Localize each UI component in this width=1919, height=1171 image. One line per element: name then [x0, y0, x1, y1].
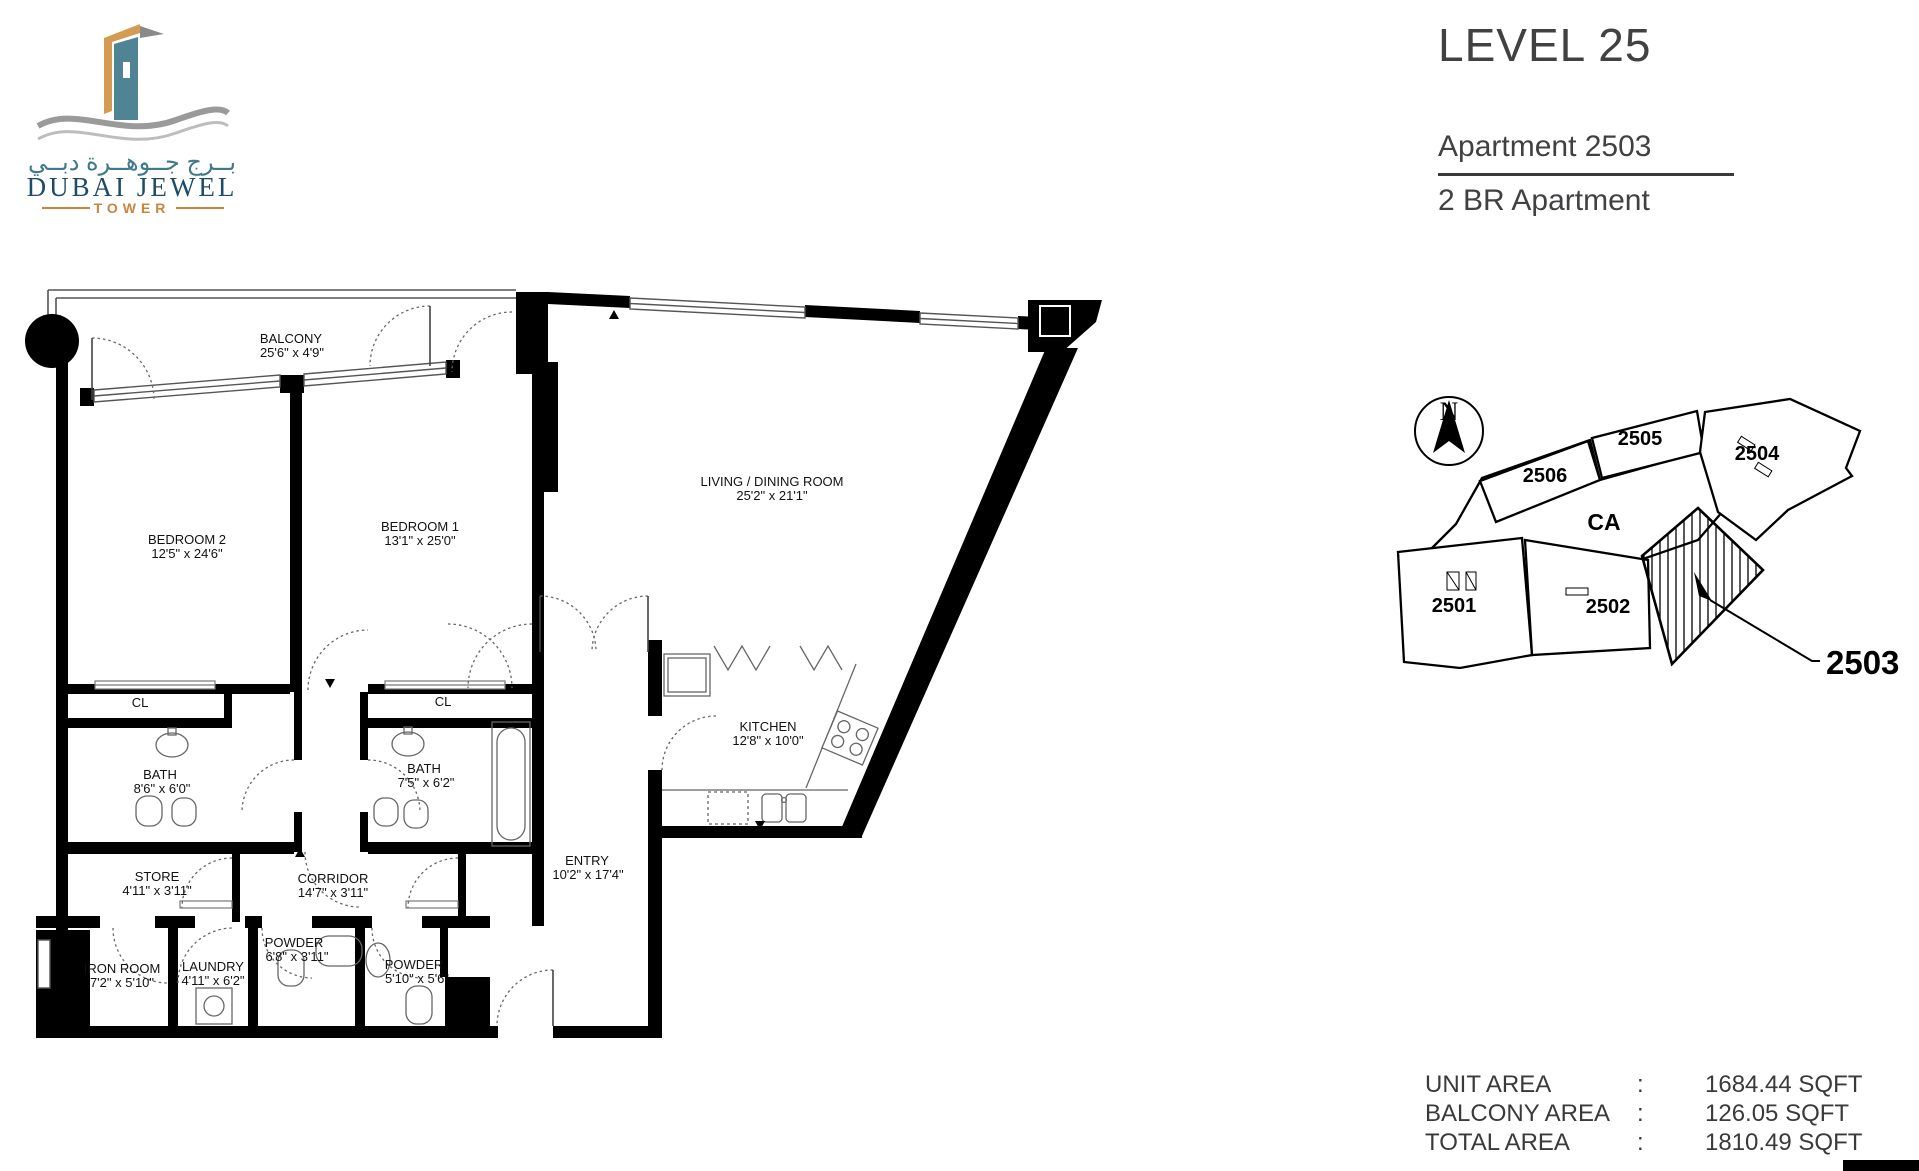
- level-title: LEVEL 25: [1438, 18, 1651, 72]
- balcony-area-row: BALCONY AREA : 126.05 SQFT: [1425, 1099, 1862, 1128]
- room-label-living-dining: LIVING / DINING ROOM 25'2" x 21'1": [700, 474, 843, 503]
- shelves-left: [714, 646, 770, 670]
- svg-text:14'7" x 3'11": 14'7" x 3'11": [298, 885, 369, 900]
- svg-text:BATH: BATH: [407, 761, 441, 776]
- svg-text:12'5" x 24'6": 12'5" x 24'6": [151, 546, 223, 561]
- total-area-colon: :: [1637, 1128, 1705, 1157]
- keyplan-label-2501: 2501: [1432, 595, 1477, 617]
- corner-bar: [1843, 1160, 1919, 1171]
- room-label-bath-1: BATH 8'6" x 6'0": [134, 767, 191, 796]
- unit-area-label: UNIT AREA: [1425, 1070, 1637, 1099]
- svg-text:CL: CL: [435, 694, 452, 709]
- room-label-powder-1: POWDER 6'8" x 3'11": [265, 935, 329, 964]
- balcony-area-colon: :: [1637, 1099, 1705, 1128]
- room-label-closet-1: CL: [132, 695, 149, 710]
- floor-plan: BALCONY 25'6" x 4'9" BEDROOM 2 12'5" x 2…: [0, 0, 1130, 1060]
- room-label-corridor: CORRIDOR 14'7" x 3'11": [298, 871, 369, 900]
- svg-text:KITCHEN: KITCHEN: [739, 719, 796, 734]
- keyplan-label-2505: 2505: [1618, 428, 1663, 450]
- room-label-kitchen: KITCHEN 12'8" x 10'0": [732, 719, 804, 748]
- keyplan-label-ca: CA: [1587, 509, 1620, 535]
- room-label-powder-2: POWDER 5'10" x 5'6": [385, 957, 450, 986]
- bath2-toilet: [374, 798, 398, 826]
- bath1-sink: [156, 733, 188, 757]
- svg-text:BALCONY: BALCONY: [260, 331, 322, 346]
- room-label-bath-2: BATH 7'5" x 6'2": [398, 761, 455, 790]
- svg-text:8'6" x 6'0": 8'6" x 6'0": [134, 781, 191, 796]
- apartment-number-label: Apartment 2503: [1438, 130, 1734, 176]
- svg-text:CL: CL: [132, 695, 149, 710]
- bath2-bidet: [404, 800, 428, 828]
- walls: [36, 292, 1102, 1038]
- total-area-row: TOTAL AREA : 1810.49 SQFT: [1425, 1128, 1862, 1157]
- room-label-laundry: LAUNDRY 4'11" x 6'2": [181, 959, 244, 988]
- balcony-area-label: BALCONY AREA: [1425, 1099, 1637, 1128]
- room-label-iron-room: IRON ROOM 7'2" x 5'10": [84, 961, 161, 990]
- svg-text:POWDER: POWDER: [385, 957, 444, 972]
- keyplan-label-2506: 2506: [1523, 465, 1568, 487]
- structural-column: [25, 314, 79, 368]
- fridge: [664, 654, 710, 696]
- svg-text:10'2" x 17'4": 10'2" x 17'4": [552, 867, 624, 882]
- svg-text:BEDROOM 2: BEDROOM 2: [148, 532, 226, 547]
- keyplan-label-2504: 2504: [1735, 443, 1780, 465]
- total-area-label: TOTAL AREA: [1425, 1128, 1637, 1157]
- shelves-right: [800, 646, 842, 670]
- svg-text:STORE: STORE: [135, 869, 180, 884]
- svg-text:4'11" x 6'2": 4'11" x 6'2": [181, 973, 244, 988]
- room-label-entry: ENTRY 10'2" x 17'4": [552, 853, 624, 882]
- powder2-toilet: [406, 986, 432, 1024]
- dishwasher: [708, 792, 748, 824]
- unit-area-value: 1684.44 SQFT: [1705, 1070, 1862, 1099]
- keyplan-label-2502: 2502: [1586, 596, 1631, 618]
- room-label-store: STORE 4'11" x 3'11": [122, 869, 192, 898]
- bath1-bidet: [172, 798, 196, 826]
- svg-text:25'2" x 21'1": 25'2" x 21'1": [736, 488, 808, 503]
- svg-text:ENTRY: ENTRY: [565, 853, 609, 868]
- svg-text:13'1" x 25'0": 13'1" x 25'0": [384, 533, 456, 548]
- apartment-type-label: 2 BR Apartment: [1438, 184, 1650, 218]
- svg-text:7'2" x 5'10": 7'2" x 5'10": [90, 975, 154, 990]
- sink-bowl-right: [786, 794, 806, 822]
- iron-room-window: [38, 940, 50, 988]
- svg-text:4'11" x 3'11": 4'11" x 3'11": [122, 883, 192, 898]
- keyplan-leader-line: [1710, 600, 1820, 661]
- svg-text:CORRIDOR: CORRIDOR: [298, 871, 369, 886]
- svg-text:7'5" x 6'2": 7'5" x 6'2": [398, 775, 455, 790]
- room-label-bedroom-1: BEDROOM 1 13'1" x 25'0": [381, 519, 459, 548]
- svg-text:IRON ROOM: IRON ROOM: [84, 961, 161, 976]
- svg-text:BATH: BATH: [143, 767, 177, 782]
- unit-area-row: UNIT AREA : 1684.44 SQFT: [1425, 1070, 1862, 1099]
- area-table: UNIT AREA : 1684.44 SQFT BALCONY AREA : …: [1425, 1070, 1862, 1157]
- svg-text:LIVING / DINING ROOM: LIVING / DINING ROOM: [700, 474, 843, 489]
- key-plan: N 2501 2502 2504 2505 2506 CA 2503: [1390, 385, 1919, 695]
- bath2-tap: [404, 727, 412, 734]
- keyplan-unit-2504: [1700, 399, 1860, 540]
- svg-text:12'8" x 10'0": 12'8" x 10'0": [732, 733, 804, 748]
- room-label-bedroom-2: BEDROOM 2 12'5" x 24'6": [148, 532, 226, 561]
- svg-text:BEDROOM 1: BEDROOM 1: [381, 519, 459, 534]
- svg-text:25'6" x 4'9": 25'6" x 4'9": [260, 345, 324, 360]
- sink-bowl-left: [762, 794, 782, 822]
- svg-text:5'10" x 5'6": 5'10" x 5'6": [385, 971, 449, 986]
- unit-area-colon: :: [1637, 1070, 1705, 1099]
- svg-text:6'8" x 3'11": 6'8" x 3'11": [265, 949, 328, 964]
- floorplan-page: بــرج جــوهــرة دبــي DUBAI JEWEL TOWER …: [0, 0, 1919, 1171]
- north-arrow: N: [1415, 397, 1483, 465]
- bath2-sink: [392, 732, 424, 756]
- bath1-toilet: [136, 796, 162, 826]
- room-label-closet-2: CL: [435, 694, 452, 709]
- svg-text:LAUNDRY: LAUNDRY: [182, 959, 244, 974]
- stove: [822, 711, 878, 765]
- room-label-balcony: BALCONY 25'6" x 4'9": [260, 331, 324, 360]
- total-area-value: 1810.49 SQFT: [1705, 1128, 1862, 1157]
- balcony-area-value: 126.05 SQFT: [1705, 1099, 1849, 1128]
- washing-machine: [196, 988, 232, 1024]
- keyplan-callout-2503: 2503: [1826, 644, 1899, 681]
- bath1-tap: [168, 728, 176, 735]
- svg-text:POWDER: POWDER: [265, 935, 324, 950]
